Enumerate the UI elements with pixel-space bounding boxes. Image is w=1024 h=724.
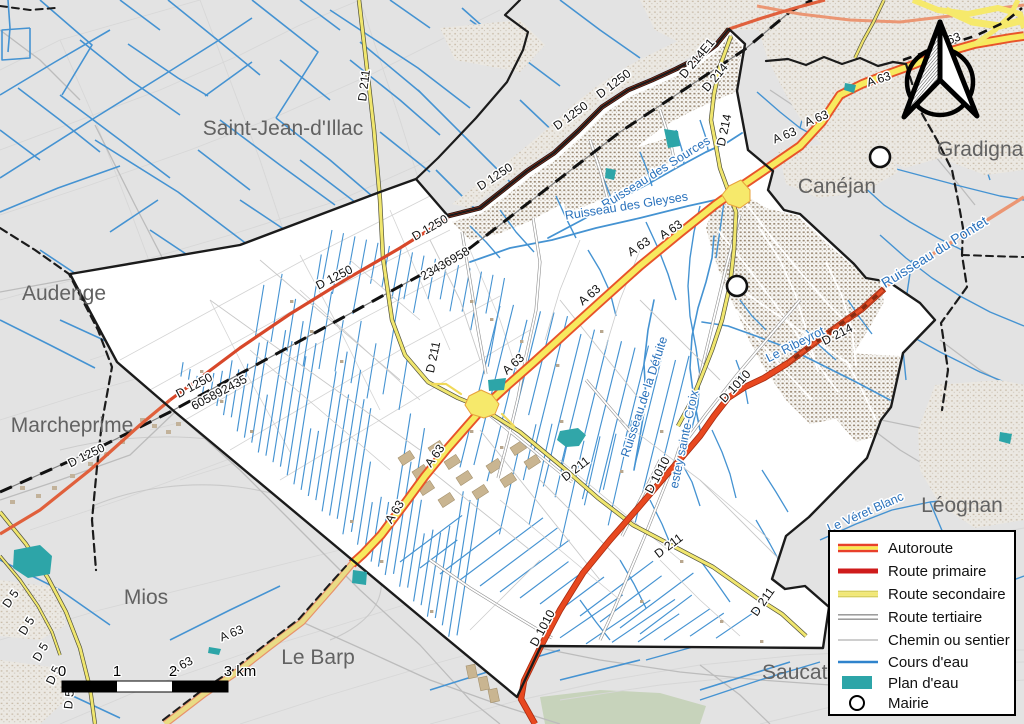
svg-text:Mios: Mios xyxy=(124,586,168,609)
svg-text:Canéjan: Canéjan xyxy=(798,175,876,198)
svg-text:Léognan: Léognan xyxy=(921,494,1003,517)
svg-text:Autoroute: Autoroute xyxy=(888,540,953,557)
svg-text:Route primaire: Route primaire xyxy=(888,563,986,580)
svg-text:Marcheprime: Marcheprime xyxy=(11,414,134,437)
svg-text:Plan d'eau: Plan d'eau xyxy=(888,675,958,692)
svg-text:Chemin ou sentier: Chemin ou sentier xyxy=(888,632,1010,649)
svg-text:Saucats: Saucats xyxy=(762,661,838,684)
svg-text:Route tertiaire: Route tertiaire xyxy=(888,609,982,626)
svg-text:Le Barp: Le Barp xyxy=(281,646,355,669)
svg-text:0: 0 xyxy=(58,663,66,680)
svg-text:Cours d'eau: Cours d'eau xyxy=(888,654,968,671)
svg-text:3 km: 3 km xyxy=(224,663,257,680)
svg-text:Mairie: Mairie xyxy=(888,695,929,712)
svg-text:Route secondaire: Route secondaire xyxy=(888,586,1006,603)
svg-text:Gradignan: Gradignan xyxy=(937,138,1024,161)
svg-text:1: 1 xyxy=(113,663,121,680)
svg-text:Audenge: Audenge xyxy=(22,282,106,305)
svg-text:Saint-Jean-d'Illac: Saint-Jean-d'Illac xyxy=(203,117,363,140)
svg-text:2: 2 xyxy=(169,663,177,680)
